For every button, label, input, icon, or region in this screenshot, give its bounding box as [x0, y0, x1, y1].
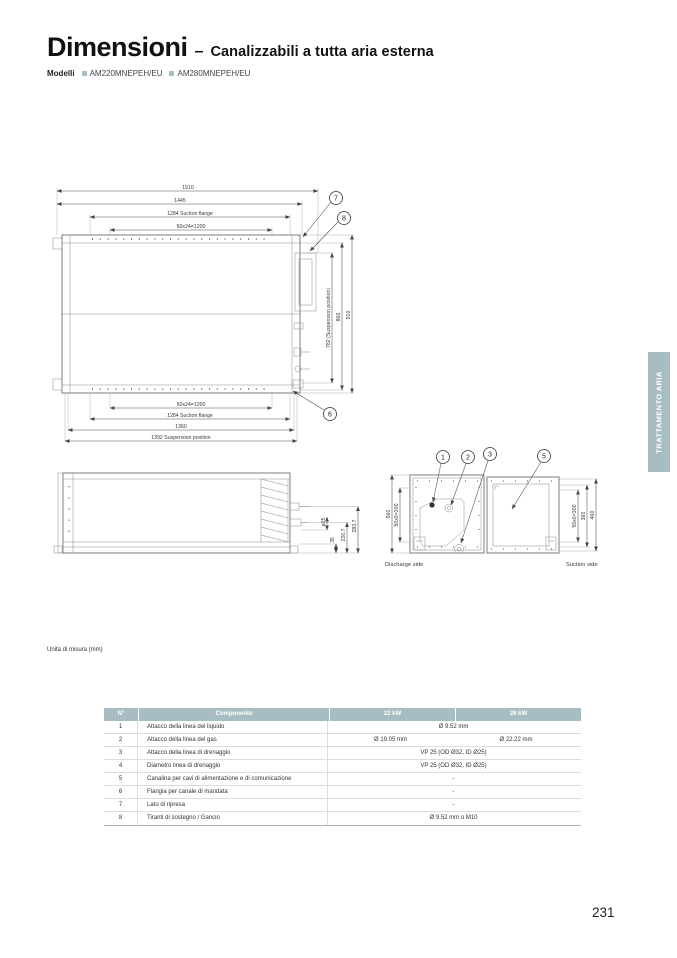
- dimension-label: 283.7: [352, 519, 358, 532]
- suction-opening: [493, 484, 549, 546]
- table-row: 7Lato di ripresa-: [104, 799, 581, 812]
- table-row: 2Attacco della linea del gasØ 19.05 mmØ …: [104, 734, 581, 747]
- suspension-bracket: [53, 238, 62, 249]
- units-note: Unità di misura (mm): [47, 647, 103, 653]
- row-number: 7: [104, 799, 138, 812]
- side-intake-box: [295, 253, 316, 311]
- end-views-drawing: 1 2 3 5 560 50x6=300: [383, 443, 613, 578]
- dimension-label: ø25: [321, 517, 327, 526]
- dimension-label: 1392 Suspension position: [151, 435, 211, 441]
- dimension-label: 460: [590, 511, 596, 520]
- row-number: 4: [104, 760, 138, 773]
- table-body: 1Attacco della linea del liquidoØ 9.52 m…: [104, 721, 581, 826]
- row-value-28kw: Ø 22.22 mm: [453, 734, 579, 747]
- catalog-page: Dimensioni – Canalizzabili a tutta aria …: [0, 0, 677, 958]
- dimension-label: 50x6=300: [394, 503, 400, 526]
- row-number: 6: [104, 786, 138, 799]
- row-value: -: [328, 773, 579, 786]
- title-separator: –: [195, 43, 204, 61]
- dimension-label: 1284 Suction flange: [167, 211, 213, 217]
- svg-text:1: 1: [441, 455, 445, 462]
- models-row: Modelli AM220MNEPEH/EU AM280MNEPEH/EU: [47, 69, 434, 78]
- dimension-label: 360: [581, 512, 587, 521]
- top-view-drawing: 1510 1445 1284 Suction flange 50x24=1200…: [40, 183, 375, 455]
- svg-text:3: 3: [488, 452, 492, 459]
- row-value: VP 25 (OD Ø32, ID Ø25): [328, 747, 579, 760]
- table-row: 6Flangia per canale di mandata-: [104, 786, 581, 799]
- side-view-drawing: ø25 35 226.7 283.7: [48, 460, 383, 585]
- model-item: AM280MNEPEH/EU: [169, 69, 250, 78]
- table-row: 4Diametro linea di drenaggioVP 25 (OD Ø3…: [104, 760, 581, 773]
- row-value: Ø 9.52 mm o M10: [328, 812, 579, 825]
- discharge-side-view: [410, 475, 484, 554]
- row-value: -: [328, 799, 579, 812]
- row-component: Diametro linea di drenaggio: [138, 760, 328, 773]
- callout-8: 8: [310, 212, 351, 252]
- dimension-label: 1284 Suction flange: [167, 413, 213, 419]
- svg-text:6: 6: [328, 412, 332, 419]
- callout-6: 6: [293, 391, 337, 421]
- piping-panel: [420, 499, 464, 546]
- row-component: Flangia per canale di mandata: [138, 786, 328, 799]
- row-value-22kw: Ø 19.05 mm: [328, 734, 453, 747]
- dimension-label: 226.7: [341, 528, 347, 541]
- row-component: Canalina per cavi di alimentazione e di …: [138, 773, 328, 786]
- svg-text:8: 8: [342, 216, 346, 223]
- table-row: 1Attacco della linea del liquidoØ 9.52 m…: [104, 721, 581, 734]
- drain-connection: [455, 545, 464, 554]
- svg-text:2: 2: [466, 455, 470, 462]
- square-bullet-icon: [169, 71, 174, 76]
- title-main: Dimensioni: [47, 32, 188, 63]
- row-number: 1: [104, 721, 138, 734]
- section-tab-label: TRATTAMENTO ARIA: [655, 371, 664, 453]
- row-component: Tiranti di sostegno / Gancio: [138, 812, 328, 825]
- table-row: 8Tiranti di sostegno / GancioØ 9.52 mm o…: [104, 812, 581, 825]
- callout-7: 7: [303, 192, 343, 238]
- row-value: -: [328, 786, 579, 799]
- suction-side-view: [487, 477, 559, 553]
- dimension-label: 50x6=300: [572, 504, 578, 527]
- dimension-label: 35: [330, 537, 336, 543]
- coil-section: [261, 479, 288, 542]
- page-header: Dimensioni – Canalizzabili a tutta aria …: [47, 32, 434, 78]
- discharge-side-label: Discharge side: [385, 562, 423, 568]
- dimension-label: 860: [336, 313, 342, 322]
- components-table: N° Componente 22 kW 28 kW 1Attacco della…: [104, 708, 581, 826]
- square-bullet-icon: [82, 71, 87, 76]
- row-value: Ø 9.52 mm: [328, 721, 579, 734]
- model-item: AM220MNEPEH/EU: [82, 69, 163, 78]
- dimension-label: 50x24=1200: [177, 402, 206, 408]
- svg-text:7: 7: [334, 196, 338, 203]
- table-row: 3Attacco della linea di drenaggioVP 25 (…: [104, 747, 581, 760]
- dimension-label: 50x24=1200: [177, 224, 206, 230]
- dimension-label: 1445: [174, 198, 186, 204]
- dimension-label: 782 (Suspension position): [326, 288, 332, 348]
- row-component: Attacco della linea di drenaggio: [138, 747, 328, 760]
- dimension-label: 1360: [175, 424, 187, 430]
- dimension-label: 910: [346, 311, 352, 320]
- liquid-connection: [429, 502, 434, 507]
- suction-side-label: Suction side: [566, 562, 598, 568]
- dimension-label: 1510: [182, 185, 194, 191]
- row-number: 2: [104, 734, 138, 747]
- suspension-bracket: [53, 379, 62, 390]
- col-header-28kw: 28 kW: [456, 708, 581, 721]
- table-header: N° Componente 22 kW 28 kW: [104, 708, 581, 721]
- row-value: VP 25 (OD Ø32, ID Ø25): [328, 760, 579, 773]
- title-subtitle: Canalizzabili a tutta aria esterna: [210, 44, 433, 60]
- svg-text:5: 5: [542, 454, 546, 461]
- row-component: Attacco della linea del gas: [138, 734, 328, 747]
- gas-pipe: [290, 503, 299, 510]
- col-header-number: N°: [104, 708, 138, 721]
- models-label: Modelli: [47, 69, 75, 78]
- callout-1: 1: [433, 451, 450, 503]
- dimension-label: 560: [386, 510, 392, 519]
- model-name: AM280MNEPEH/EU: [177, 69, 250, 78]
- model-name: AM220MNEPEH/EU: [90, 69, 163, 78]
- col-header-component: Componente: [139, 708, 329, 721]
- gas-connection: [445, 504, 453, 512]
- col-header-22kw: 22 kW: [330, 708, 455, 721]
- row-component: Lato di ripresa: [138, 799, 328, 812]
- liquid-pipe: [290, 519, 301, 526]
- table-row: 5Canalina per cavi di alimentazione e di…: [104, 773, 581, 786]
- page-number: 231: [592, 905, 615, 920]
- row-number: 8: [104, 812, 138, 825]
- section-tab-trattamento-aria: TRATTAMENTO ARIA: [648, 352, 670, 472]
- callout-5: 5: [512, 450, 551, 510]
- row-component: Attacco della linea del liquido: [138, 721, 328, 734]
- page-title: Dimensioni – Canalizzabili a tutta aria …: [47, 32, 434, 63]
- row-number: 5: [104, 773, 138, 786]
- row-number: 3: [104, 747, 138, 760]
